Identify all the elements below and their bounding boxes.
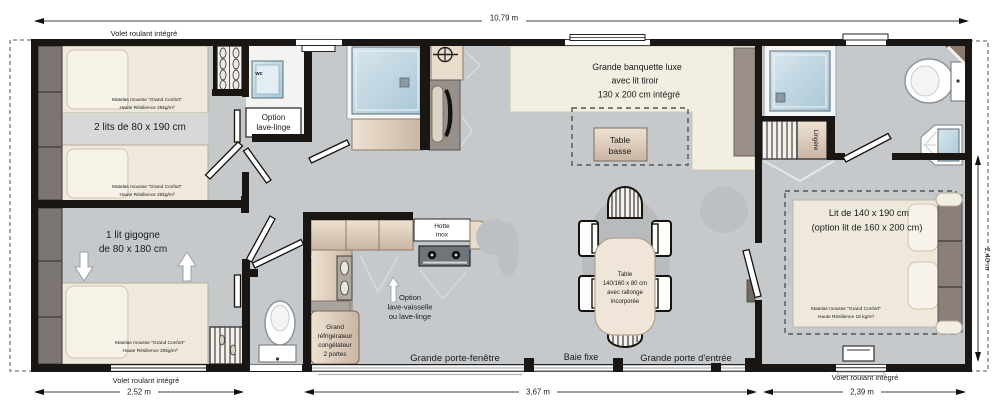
svg-text:2 lits de 80 x 190 cm: 2 lits de 80 x 190 cm xyxy=(94,122,186,133)
svg-text:avec lit tiroir: avec lit tiroir xyxy=(612,76,659,86)
svg-text:Haute Résilience 25kg/m³: Haute Résilience 25kg/m³ xyxy=(120,105,175,111)
svg-text:Matelas mousse "Grand Confort": Matelas mousse "Grand Confort" xyxy=(811,306,881,312)
svg-text:lave-vaisselle: lave-vaisselle xyxy=(387,303,432,312)
svg-text:Volet roulant intégré: Volet roulant intégré xyxy=(113,376,180,385)
svg-text:Haute Résilience 25kg/m³: Haute Résilience 25kg/m³ xyxy=(120,192,175,198)
svg-text:2,39 m: 2,39 m xyxy=(850,388,874,397)
svg-text:inox: inox xyxy=(436,232,449,239)
svg-text:congélateur: congélateur xyxy=(318,342,352,349)
svg-text:Grand: Grand xyxy=(326,324,344,331)
svg-text:Baie fixe: Baie fixe xyxy=(564,352,599,362)
svg-text:Grande banquette luxe: Grande banquette luxe xyxy=(592,62,682,72)
svg-text:incorporée: incorporée xyxy=(611,299,640,305)
svg-text:Lingère: Lingère xyxy=(812,130,819,151)
svg-text:(option lit de 160 x 200 cm): (option lit de 160 x 200 cm) xyxy=(812,223,923,233)
svg-text:réfrigérateur: réfrigérateur xyxy=(318,333,354,340)
svg-text:2,40 m: 2,40 m xyxy=(983,248,992,271)
svg-text:Matelas mousse "Grand Confort": Matelas mousse "Grand Confort" xyxy=(112,184,182,190)
svg-text:Grande porte d'entrée: Grande porte d'entrée xyxy=(640,352,731,363)
svg-text:1 lit gigogne: 1 lit gigogne xyxy=(106,230,160,241)
svg-text:Matelas mousse "Grand Confort": Matelas mousse "Grand Confort" xyxy=(115,340,185,346)
svg-text:Hotte: Hotte xyxy=(434,223,450,230)
svg-text:ou lave-linge: ou lave-linge xyxy=(389,312,432,321)
svg-text:Table: Table xyxy=(610,135,631,145)
svg-text:10,79 m: 10,79 m xyxy=(490,14,518,23)
svg-text:lave-linge: lave-linge xyxy=(256,123,291,132)
svg-text:Grande porte-fenêtre: Grande porte-fenêtre xyxy=(410,353,500,364)
svg-text:2 portes: 2 portes xyxy=(323,351,346,358)
svg-text:Haute Résilience 20kg/m³: Haute Résilience 20kg/m³ xyxy=(123,348,178,354)
svg-text:Haute Résilience 18 kg/m³: Haute Résilience 18 kg/m³ xyxy=(818,314,875,320)
svg-text:3,67 m: 3,67 m xyxy=(526,388,550,397)
svg-text:Table: Table xyxy=(618,272,633,278)
svg-text:2,52 m: 2,52 m xyxy=(127,388,151,397)
svg-text:basse: basse xyxy=(609,146,632,156)
svg-text:Volet roulant intégré: Volet roulant intégré xyxy=(111,29,178,38)
svg-text:Matelas mousse "Grand Confort": Matelas mousse "Grand Confort" xyxy=(112,97,182,103)
svg-text:140/160 x 80 cm: 140/160 x 80 cm xyxy=(603,281,647,287)
svg-text:avec rallonge: avec rallonge xyxy=(607,290,643,296)
svg-text:de 80 x 180 cm: de 80 x 180 cm xyxy=(99,244,167,255)
svg-text:Option: Option xyxy=(262,113,286,122)
svg-text:Lit de 140 x 190 cm: Lit de 140 x 190 cm xyxy=(829,208,910,218)
svg-text:wc: wc xyxy=(254,71,262,77)
svg-text:Option: Option xyxy=(399,293,421,302)
svg-text:130 x 200 cm intégré: 130 x 200 cm intégré xyxy=(598,90,680,100)
